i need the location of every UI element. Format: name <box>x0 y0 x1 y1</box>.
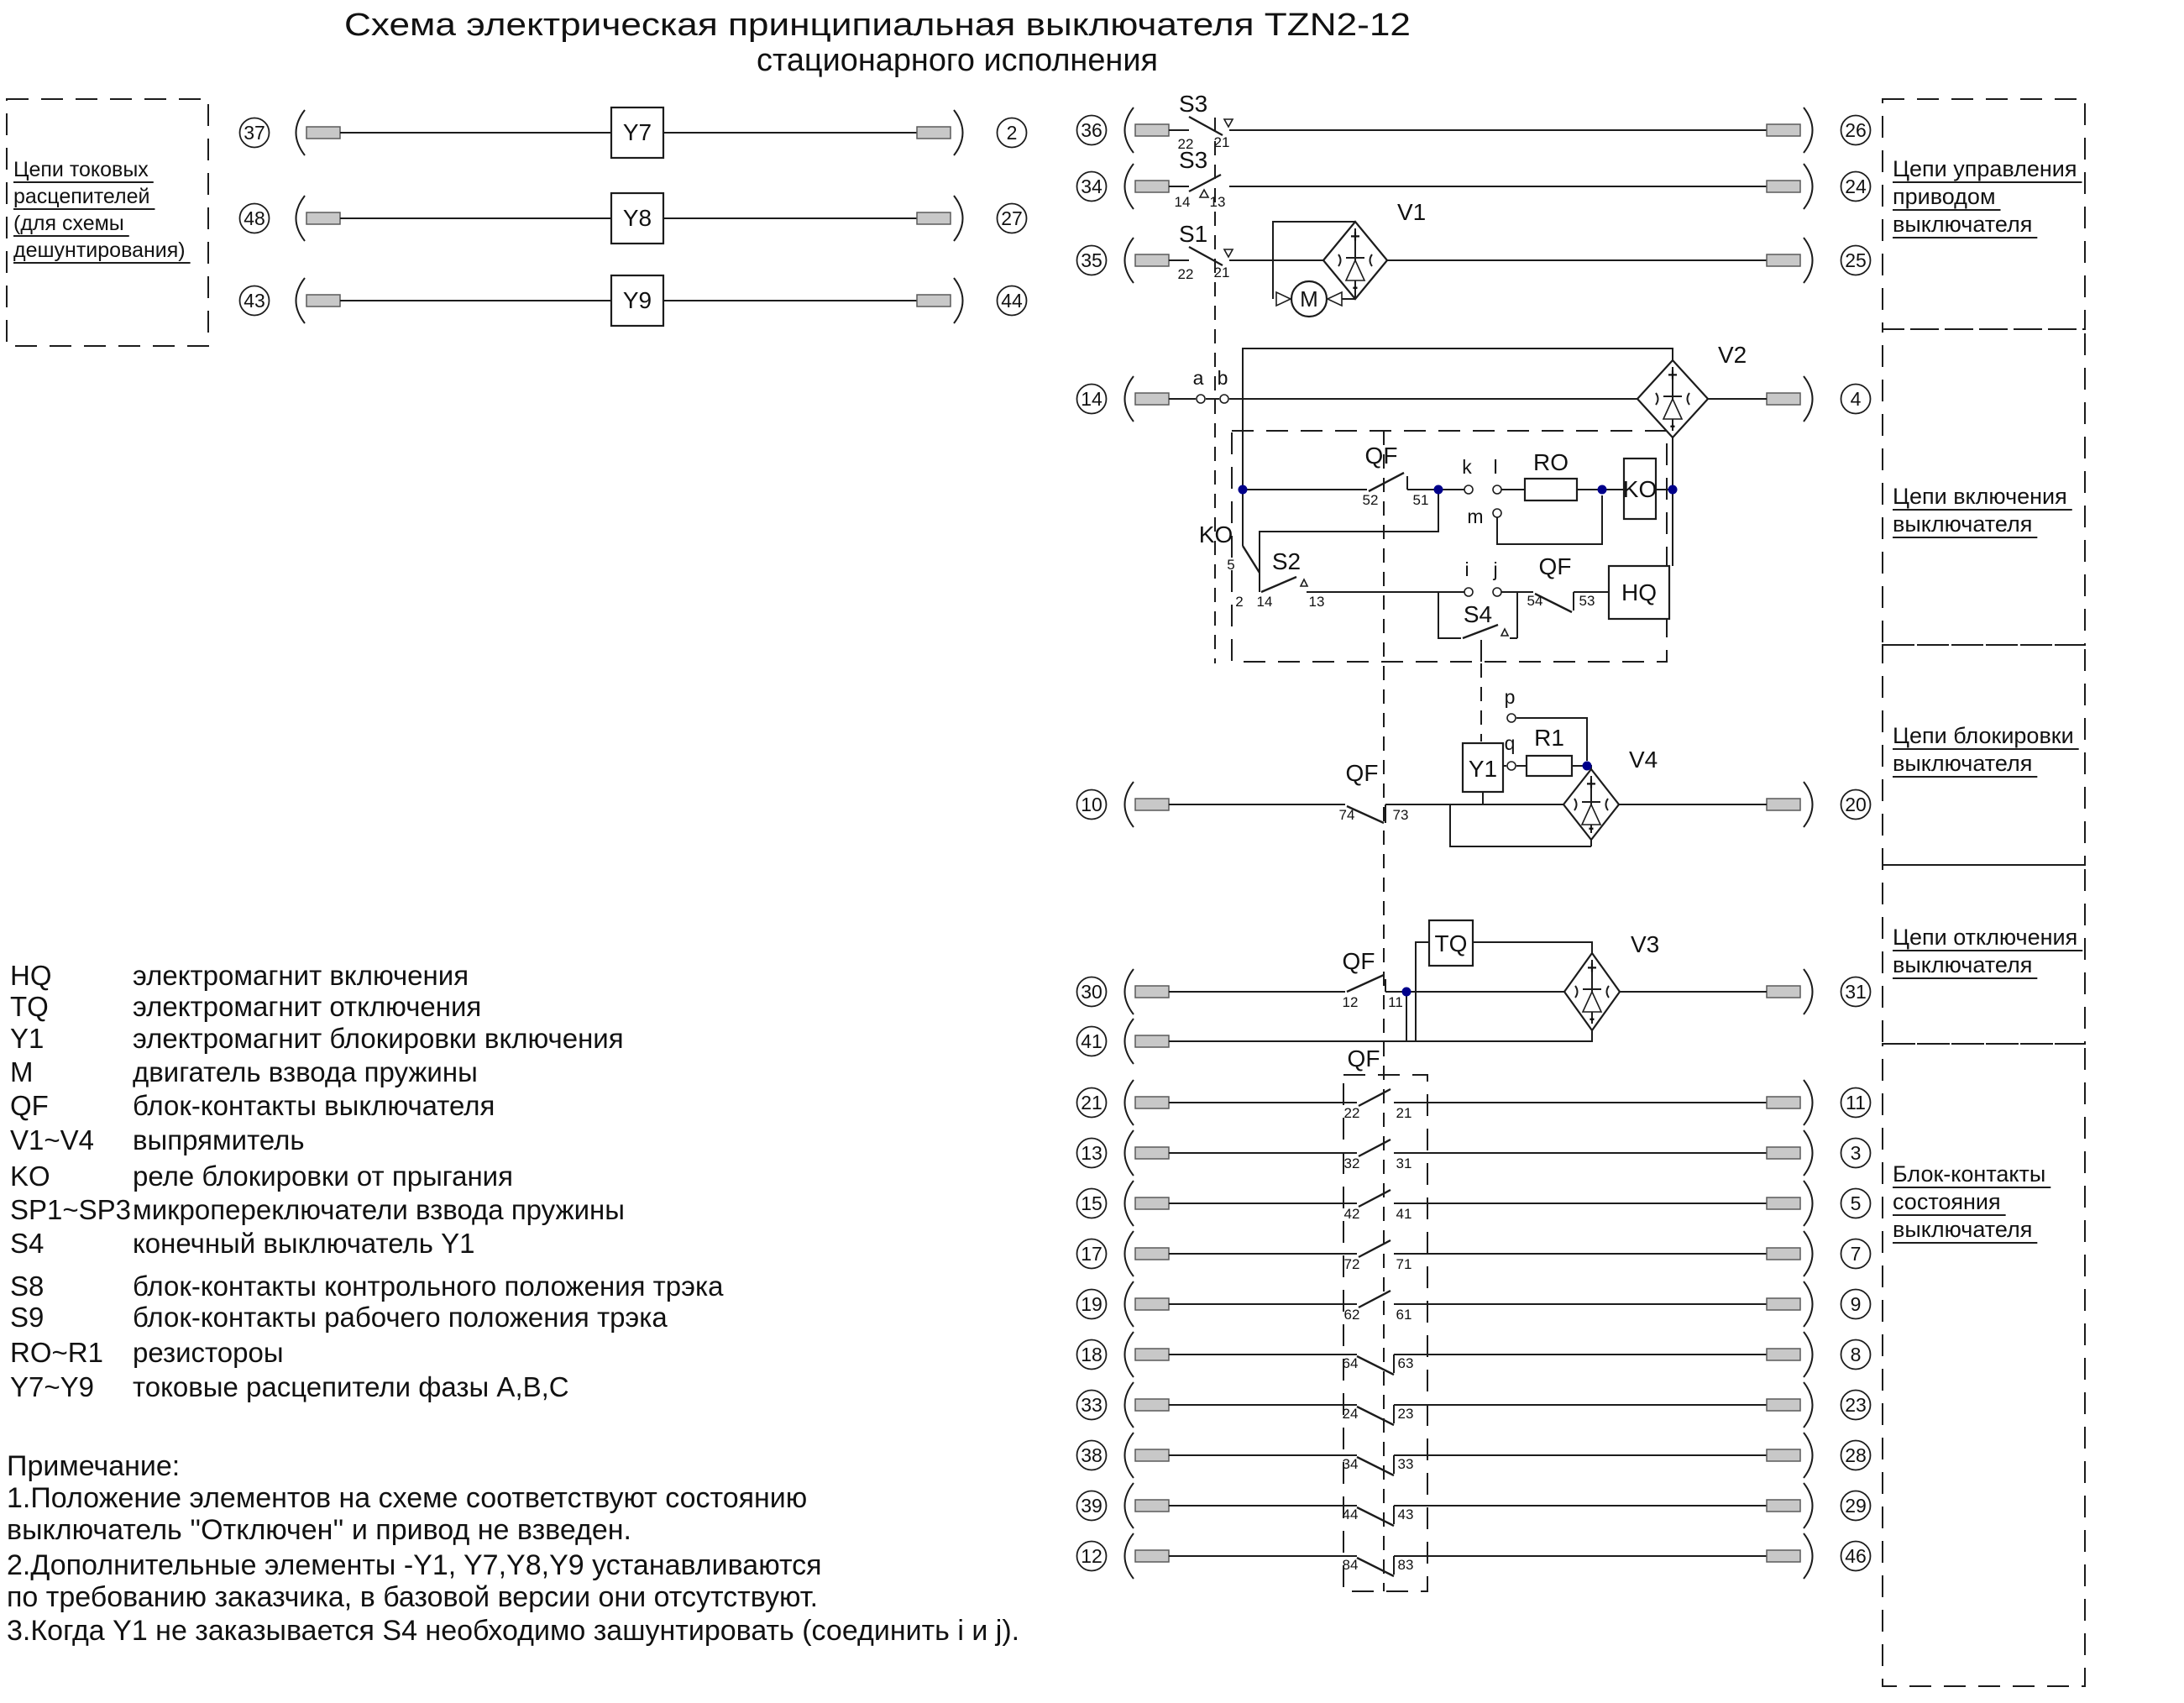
terminal-17-number: 17 <box>1081 1243 1102 1265</box>
section-box <box>1883 1044 2085 1686</box>
legend-description: электромагнит отключения <box>133 991 481 1022</box>
point-a-label: a <box>1193 367 1204 389</box>
connector-plug-icon <box>1767 1349 1800 1360</box>
rectifier-label-V2: V2 <box>1718 342 1747 368</box>
qf-contact-blade <box>1359 1190 1391 1207</box>
notes-heading: Примечание: <box>7 1450 180 1482</box>
qf-contact-blade <box>1357 1356 1394 1375</box>
connector-plug-icon <box>1135 393 1169 405</box>
contact-num: 63 <box>1398 1355 1414 1371</box>
legend-symbol: S4 <box>10 1228 44 1259</box>
junction-dot <box>1402 988 1411 997</box>
qf-contact-blade <box>1357 1558 1394 1576</box>
switch-label-S1: S1 <box>1179 221 1207 247</box>
terminal-30-number: 30 <box>1081 981 1102 1003</box>
terminal-34-number: 34 <box>1081 176 1102 197</box>
connector-plug-icon <box>1135 254 1169 266</box>
point-j <box>1493 588 1501 596</box>
wire <box>1243 348 1673 399</box>
terminal-18-number: 18 <box>1081 1344 1102 1365</box>
y1-coil-label: Y1 <box>1469 756 1497 782</box>
legend-description: блок-контакты контрольного положения трэ… <box>133 1271 724 1302</box>
connector-plug-icon <box>306 212 340 224</box>
connector-arc-icon <box>1125 1433 1134 1478</box>
connector-plug-icon <box>1135 1298 1169 1310</box>
point-l-label: l <box>1493 456 1497 478</box>
title-line2: стационарного исполнения <box>757 43 1158 78</box>
connector-arc-icon <box>1804 376 1813 422</box>
contact-num: 31 <box>1396 1155 1412 1171</box>
terminal-3-number: 3 <box>1851 1142 1862 1164</box>
contact-num: 43 <box>1398 1506 1414 1522</box>
rectifier-label-V3: V3 <box>1631 931 1659 957</box>
connector-arc-icon <box>1125 1483 1134 1528</box>
junction-dot <box>1598 485 1607 495</box>
connector-plug-icon <box>1135 799 1169 810</box>
connector-arc-icon <box>296 110 306 155</box>
terminal-24-number: 24 <box>1845 176 1867 197</box>
contact-num: 62 <box>1344 1307 1360 1323</box>
contact-num: 14 <box>1175 194 1191 210</box>
diode-icon <box>1328 292 1342 306</box>
connector-plug-icon <box>1135 1500 1169 1512</box>
connector-plug-icon <box>1135 124 1169 136</box>
connector-plug-icon <box>917 295 951 307</box>
connector-plug-icon <box>306 295 340 307</box>
contact-num: 34 <box>1343 1456 1359 1472</box>
connector-arc-icon <box>1125 1231 1134 1276</box>
section-label: состояния <box>1893 1189 2001 1214</box>
switch-blade <box>1189 247 1223 265</box>
terminal-11-number: 11 <box>1846 1092 1866 1113</box>
legend-description: резистороы <box>133 1337 284 1368</box>
trip-circuits-box-label: (для схемы <box>13 212 124 235</box>
terminal-25-number: 25 <box>1845 249 1867 271</box>
contact-marker-icon <box>1200 190 1208 197</box>
section-label: выключателя <box>1893 1217 2032 1242</box>
section-label: выключателя <box>1893 212 2032 237</box>
point-k <box>1464 485 1473 494</box>
contact-num: 21 <box>1214 134 1230 150</box>
legend-symbol: TQ <box>10 991 49 1022</box>
point-b-label: b <box>1218 367 1228 389</box>
contact-num: 41 <box>1396 1206 1412 1222</box>
connector-arc-icon <box>1125 1382 1134 1428</box>
rectifier-bridges: +-V1+-V2+-V3+-V4 <box>1323 199 1747 1030</box>
connector-arc-icon <box>1804 969 1813 1014</box>
terminal-28-number: 28 <box>1845 1444 1867 1466</box>
terminal-12-number: 12 <box>1081 1545 1102 1567</box>
contact-num: 54 <box>1527 593 1543 609</box>
junction-dot <box>1434 485 1443 495</box>
release-coil-label: Y9 <box>623 287 652 313</box>
point-b <box>1220 395 1228 403</box>
rectifier-label-V4: V4 <box>1629 747 1658 773</box>
terminal-26-number: 26 <box>1845 119 1867 141</box>
motor-label: M <box>1300 286 1318 312</box>
contact-marker-icon <box>1301 579 1307 586</box>
legend-symbol: Y7~Y9 <box>10 1371 94 1402</box>
point-i-label: i <box>1464 558 1469 580</box>
connector-arc-icon <box>1804 1433 1813 1478</box>
contact-num: 23 <box>1398 1406 1414 1422</box>
qf-label: QF <box>1346 760 1379 786</box>
release-coil-label: Y8 <box>623 205 652 231</box>
contact-num: 84 <box>1343 1557 1359 1573</box>
connector-plug-icon <box>1767 1500 1800 1512</box>
qf-contact-blade <box>1359 1240 1391 1257</box>
section-label: Цепи блокировки <box>1893 723 2074 748</box>
connector-arc-icon <box>1804 1483 1813 1528</box>
notes: Примечание:1.Положение элементов на схем… <box>7 1450 1019 1647</box>
legend-description: блок-контакты выключателя <box>133 1090 495 1121</box>
contact-num: 72 <box>1344 1256 1360 1272</box>
contact-num: 42 <box>1344 1206 1360 1222</box>
legend-symbol: Y1 <box>10 1023 44 1054</box>
legend-symbol: M <box>10 1056 34 1087</box>
connector-plug-icon <box>1135 1035 1169 1047</box>
connector-plug-icon <box>1135 1197 1169 1209</box>
connector-arc-icon <box>1804 1382 1813 1428</box>
connector-arc-icon <box>1804 1231 1813 1276</box>
qf-label: QF <box>1343 948 1375 974</box>
connector-plug-icon <box>1767 1399 1800 1411</box>
legend-description: конечный выключатель Y1 <box>133 1228 475 1259</box>
section-label: выключателя <box>1893 511 2032 537</box>
note-line: выключатель ''Отключен'' и привод не взв… <box>7 1514 631 1546</box>
connector-plug-icon <box>1767 1097 1800 1108</box>
ko-contact-blade <box>1243 546 1260 573</box>
terminal-9-number: 9 <box>1851 1293 1862 1315</box>
contact-num: 32 <box>1344 1155 1360 1171</box>
connector-arc-icon <box>296 278 306 323</box>
terminal-48-number: 48 <box>244 207 265 229</box>
qf-contact-blade <box>1359 1291 1391 1307</box>
legend-description: выпрямитель <box>133 1124 305 1155</box>
connector-plug-icon <box>1767 393 1800 405</box>
connector-arc-icon <box>1804 1332 1813 1377</box>
s2-label: S2 <box>1272 548 1301 574</box>
legend-symbol: S9 <box>10 1302 44 1333</box>
minus-mark: - <box>1589 819 1595 837</box>
terminal-44-number: 44 <box>1001 290 1023 312</box>
point-p <box>1507 714 1516 722</box>
minus-mark: - <box>1590 1009 1595 1028</box>
connector-plug-icon <box>1135 1399 1169 1411</box>
connector-plug-icon <box>1767 1550 1800 1562</box>
qf-label: QF <box>1348 1045 1380 1072</box>
junction-dot <box>1668 485 1678 495</box>
plus-mark: + <box>1350 228 1360 246</box>
connector-arc-icon <box>1804 107 1813 153</box>
terminal-43-number: 43 <box>244 290 265 312</box>
connector-arc-icon <box>1125 782 1134 827</box>
terminal-31-number: 31 <box>1845 981 1867 1003</box>
connector-plug-icon <box>1135 986 1169 998</box>
terminal-37-number: 37 <box>244 122 265 144</box>
locking-circuit: QF 74 73 Y1 q R1 p <box>1169 686 1767 846</box>
trip-circuits-box-label: расцепителей <box>13 185 149 208</box>
connector-arc-icon <box>1804 1181 1813 1226</box>
note-line: 3.Когда Y1 не заказывается S4 необходимо… <box>7 1615 1019 1647</box>
contact-num: 14 <box>1257 594 1273 610</box>
wire <box>1497 495 1602 544</box>
terminal-8-number: 8 <box>1851 1344 1862 1365</box>
legend-description: реле блокировки от прыгания <box>133 1161 513 1192</box>
section-label: выключателя <box>1893 952 2032 977</box>
section-label: Цепи управления <box>1893 156 2077 181</box>
terminal-20-number: 20 <box>1845 794 1867 815</box>
connector-plug-icon <box>1135 1550 1169 1562</box>
point-i <box>1464 588 1473 596</box>
qf-label: QF <box>1365 443 1398 469</box>
point-j-label: j <box>1492 558 1497 580</box>
connector-plug-icon <box>1767 1449 1800 1461</box>
point-m-label: m <box>1467 506 1483 527</box>
point-m <box>1493 509 1501 517</box>
closing-interlock-box <box>1232 431 1667 662</box>
terminal-14-number: 14 <box>1081 388 1102 410</box>
connector-plug-icon <box>1135 1147 1169 1159</box>
contact-num: 64 <box>1343 1355 1359 1371</box>
terminal-13-number: 13 <box>1081 1142 1102 1164</box>
legend-description: токовые расцепители фазы A,B,C <box>133 1371 569 1402</box>
section-label: Цепи отключения <box>1893 925 2077 950</box>
title-line1: Схема электрическая принципиальная выклю… <box>344 8 1411 43</box>
s4-label: S4 <box>1464 601 1492 627</box>
legend-description: электромагнит блокировки включения <box>133 1023 624 1054</box>
plus-mark: + <box>1587 959 1597 977</box>
terminal-15-number: 15 <box>1081 1192 1102 1214</box>
connector-arc-icon <box>1125 1130 1134 1176</box>
contact-num: 13 <box>1210 194 1226 210</box>
connector-arc-icon <box>1125 164 1134 209</box>
connector-plug-icon <box>1767 1147 1800 1159</box>
terminal-38-number: 38 <box>1081 1444 1102 1466</box>
qf-label: QF <box>1539 553 1572 579</box>
ko-contact-label: KO <box>1199 521 1233 548</box>
point-k-label: k <box>1462 456 1472 478</box>
wire <box>1169 992 1592 1041</box>
connector-arc-icon <box>1804 782 1813 827</box>
terminal-19-number: 19 <box>1081 1293 1102 1315</box>
connector-arc-icon <box>1804 164 1813 209</box>
terminal-2-number: 2 <box>1007 122 1018 144</box>
point-l <box>1493 485 1501 494</box>
contact-num: 22 <box>1178 266 1194 282</box>
connector-arc-icon <box>1125 1181 1134 1226</box>
trip-circuits-box: Цепи токовыхрасцепителей(для схемыдешунт… <box>7 99 208 346</box>
connector-arc-icon <box>1125 1332 1134 1377</box>
qf-contact-blade <box>1359 1140 1391 1156</box>
terminal-35-number: 35 <box>1081 249 1102 271</box>
legend-symbol: HQ <box>10 960 52 991</box>
connector-plug-icon <box>1135 1349 1169 1360</box>
minus-mark: - <box>1670 417 1676 435</box>
connector-arc-icon <box>296 196 306 241</box>
section-label: выключателя <box>1893 751 2032 776</box>
connector-plug-icon <box>1767 799 1800 810</box>
terminal-39-number: 39 <box>1081 1495 1102 1517</box>
terminal-10-number: 10 <box>1081 794 1102 815</box>
connector-plug-icon <box>306 127 340 139</box>
legend-description: двигатель взвода пружины <box>133 1056 478 1087</box>
connector-plug-icon <box>1767 986 1800 998</box>
block-contact-rows: 2122211113323131542415177271719626191864… <box>1077 1080 1871 1579</box>
contact-marker-icon <box>1224 119 1233 127</box>
tq-coil-label: TQ <box>1435 930 1468 956</box>
wire <box>1260 494 1438 592</box>
connector-plug-icon <box>1135 1248 1169 1260</box>
trip-circuits-box-label: Цепи токовых <box>13 158 149 181</box>
legend: HQэлектромагнит включенияTQэлектромагнит… <box>10 960 724 1402</box>
qf-contact-blade <box>1357 1507 1394 1526</box>
title: Схема электрическая принципиальная выклю… <box>344 8 1411 78</box>
note-line: по требованию заказчика, в базовой верси… <box>7 1581 818 1613</box>
resistor-r1 <box>1527 756 1572 776</box>
connector-arc-icon <box>1804 238 1813 283</box>
connector-arc-icon <box>1804 1281 1813 1327</box>
ko-coil-label: KO <box>1623 476 1657 502</box>
legend-symbol: QF <box>10 1090 49 1121</box>
connector-plug-icon <box>1767 1248 1800 1260</box>
connector-arc-icon <box>1125 1281 1134 1327</box>
connector-plug-icon <box>1767 181 1800 192</box>
junction-dot <box>1239 485 1248 495</box>
connector-arc-icon <box>1125 969 1134 1014</box>
connector-plug-icon <box>1767 1298 1800 1310</box>
connector-plug-icon <box>1767 254 1800 266</box>
terminal-23-number: 23 <box>1845 1394 1867 1416</box>
release-coil-label: Y7 <box>623 119 652 145</box>
section-label: Цепи включения <box>1893 484 2067 509</box>
terminal-29-number: 29 <box>1845 1495 1867 1517</box>
connector-arc-icon <box>954 278 963 323</box>
contact-num: 61 <box>1396 1307 1412 1323</box>
plus-mark: + <box>1586 775 1596 794</box>
contact-num: 24 <box>1343 1406 1359 1422</box>
contact-num: 2 <box>1235 594 1243 610</box>
qf-contact-blade <box>1357 1407 1394 1425</box>
contact-num: 22 <box>1344 1105 1360 1121</box>
qf-contact-blade <box>1347 975 1384 992</box>
switch-blade <box>1189 117 1223 135</box>
connector-arc-icon <box>1125 1533 1134 1579</box>
hq-coil-label: HQ <box>1621 579 1657 605</box>
legend-description: электромагнит включения <box>133 960 469 991</box>
diode-icon <box>1276 292 1291 306</box>
connector-plug-icon <box>917 127 951 139</box>
connector-arc-icon <box>1125 238 1134 283</box>
terminal-33-number: 33 <box>1081 1394 1102 1416</box>
connector-arc-icon <box>954 196 963 241</box>
connector-plug-icon <box>1767 1197 1800 1209</box>
terminal-21-number: 21 <box>1081 1092 1102 1113</box>
rectifier-label-V1: V1 <box>1397 199 1426 225</box>
legend-symbol: S8 <box>10 1271 44 1302</box>
connector-plug-icon <box>1767 124 1800 136</box>
section-label: Блок-контакты <box>1893 1161 2045 1187</box>
switch-label-S3: S3 <box>1179 147 1207 173</box>
contact-num: 44 <box>1343 1506 1359 1522</box>
note-line: 1.Положение элементов на схеме соответст… <box>7 1482 807 1514</box>
connector-arc-icon <box>1804 1130 1813 1176</box>
point-p-label: p <box>1505 686 1516 708</box>
note-line: 2.Дополнительные элементы -Y1, Y7,Y8,Y9 … <box>7 1549 822 1581</box>
contact-num: 13 <box>1309 594 1325 610</box>
contact-num: 71 <box>1396 1256 1412 1272</box>
connector-plug-icon <box>1135 181 1169 192</box>
trip-circuits-box-label: дешунтирования) <box>13 238 186 262</box>
schematic-canvas: Схема электрическая принципиальная выклю… <box>0 0 2184 1703</box>
contact-num: 11 <box>1388 994 1403 1010</box>
contact-num: 53 <box>1579 593 1595 609</box>
terminal-5-number: 5 <box>1851 1192 1862 1214</box>
connector-arc-icon <box>1125 376 1134 422</box>
resistor-ro <box>1525 479 1577 500</box>
contact-num: 12 <box>1343 994 1359 1010</box>
legend-symbol: RO~R1 <box>10 1337 103 1368</box>
connector-plug-icon <box>1135 1449 1169 1461</box>
legend-symbol: V1~V4 <box>10 1124 94 1155</box>
trip-rows: 37Y7248Y82743Y944 <box>240 107 1027 326</box>
point-q <box>1507 762 1516 770</box>
s2-contact-blade <box>1261 577 1296 592</box>
legend-description: блок-контакты рабочего положения трэка <box>133 1302 668 1333</box>
contact-num: 52 <box>1363 492 1379 508</box>
contact-num: 83 <box>1398 1557 1414 1573</box>
legend-symbol: KO <box>10 1161 50 1192</box>
contact-num: 5 <box>1227 557 1234 573</box>
ro-label: RO <box>1533 449 1569 475</box>
point-a <box>1197 395 1205 403</box>
drive-control-rows: 36S322212634S314132435S1222125 <box>1077 91 1871 283</box>
contact-num: 21 <box>1214 265 1230 280</box>
contact-marker-icon <box>1224 249 1233 257</box>
plus-mark: + <box>1668 366 1678 385</box>
junction-dot <box>1583 762 1592 771</box>
contact-num: 21 <box>1396 1105 1412 1121</box>
point-q-label: q <box>1505 732 1516 754</box>
connector-arc-icon <box>954 110 963 155</box>
terminal-27-number: 27 <box>1001 207 1023 229</box>
r1-label: R1 <box>1534 725 1564 751</box>
section-label: приводом <box>1893 184 1996 209</box>
tripping-circuit: QF 12 11 TQ QF <box>1169 920 1767 1072</box>
switch-blade <box>1189 175 1221 191</box>
terminal-41-number: 41 <box>1081 1030 1102 1052</box>
contact-num: 74 <box>1339 807 1355 823</box>
legend-description: микропереключатели взвода пружины <box>133 1194 625 1225</box>
terminal-7-number: 7 <box>1851 1243 1862 1265</box>
connector-arc-icon <box>1804 1080 1813 1125</box>
contact-num: 73 <box>1393 807 1409 823</box>
connector-plug-icon <box>1135 1097 1169 1108</box>
legend-symbol: SP1~SP3 <box>10 1194 131 1225</box>
connector-arc-icon <box>1125 1019 1134 1064</box>
contact-num: 33 <box>1398 1456 1414 1472</box>
switch-label-S3: S3 <box>1179 91 1207 117</box>
terminal-36-number: 36 <box>1081 119 1102 141</box>
qf-contact-blade <box>1359 1089 1391 1106</box>
contact-marker-icon <box>1501 629 1508 636</box>
terminal-4-number: 4 <box>1851 388 1862 410</box>
section-label-boxes: Цепи управленияприводомвыключателяЦепи в… <box>1883 99 2085 1686</box>
terminal-46-number: 46 <box>1845 1545 1867 1567</box>
connector-arc-icon <box>1125 1080 1134 1125</box>
qf-contact-blade <box>1357 1457 1394 1475</box>
qf-contact-blade <box>1369 473 1404 491</box>
